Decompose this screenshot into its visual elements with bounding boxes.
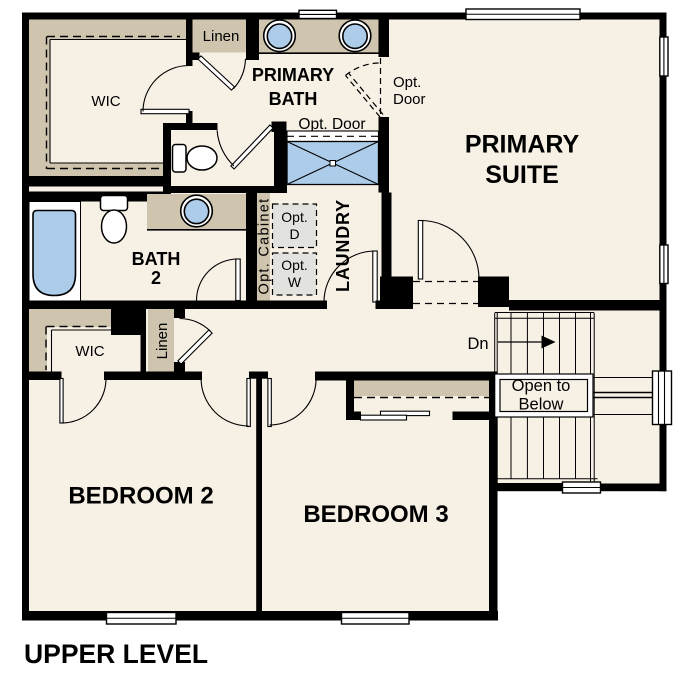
svg-text:WIC: WIC	[91, 93, 120, 110]
svg-text:Open to: Open to	[512, 377, 571, 395]
svg-text:Opt.: Opt.	[281, 257, 307, 273]
svg-text:Linen: Linen	[203, 28, 240, 45]
svg-text:Opt.: Opt.	[393, 74, 421, 91]
svg-text:SUITE: SUITE	[485, 161, 559, 189]
svg-text:Below: Below	[519, 396, 564, 414]
svg-text:W: W	[288, 274, 302, 290]
svg-text:BATH: BATH	[132, 249, 181, 269]
svg-text:D: D	[289, 226, 299, 242]
svg-text:BATH: BATH	[269, 89, 318, 109]
svg-text:PRIMARY: PRIMARY	[252, 65, 334, 85]
svg-text:Opt. Cabinet: Opt. Cabinet	[257, 197, 273, 294]
svg-text:2: 2	[151, 268, 161, 288]
svg-text:Linen: Linen	[154, 323, 171, 360]
svg-text:WIC: WIC	[75, 343, 104, 360]
svg-text:BEDROOM 3: BEDROOM 3	[303, 501, 448, 528]
svg-text:UPPER LEVEL: UPPER LEVEL	[24, 639, 208, 669]
svg-text:Opt. Door: Opt. Door	[298, 116, 365, 133]
svg-text:BEDROOM 2: BEDROOM 2	[68, 483, 213, 510]
svg-text:LAUNDRY: LAUNDRY	[333, 199, 353, 292]
svg-text:PRIMARY: PRIMARY	[465, 131, 580, 159]
svg-text:Opt.: Opt.	[281, 209, 307, 225]
svg-text:Door: Door	[393, 91, 426, 108]
svg-text:Dn: Dn	[467, 335, 488, 353]
